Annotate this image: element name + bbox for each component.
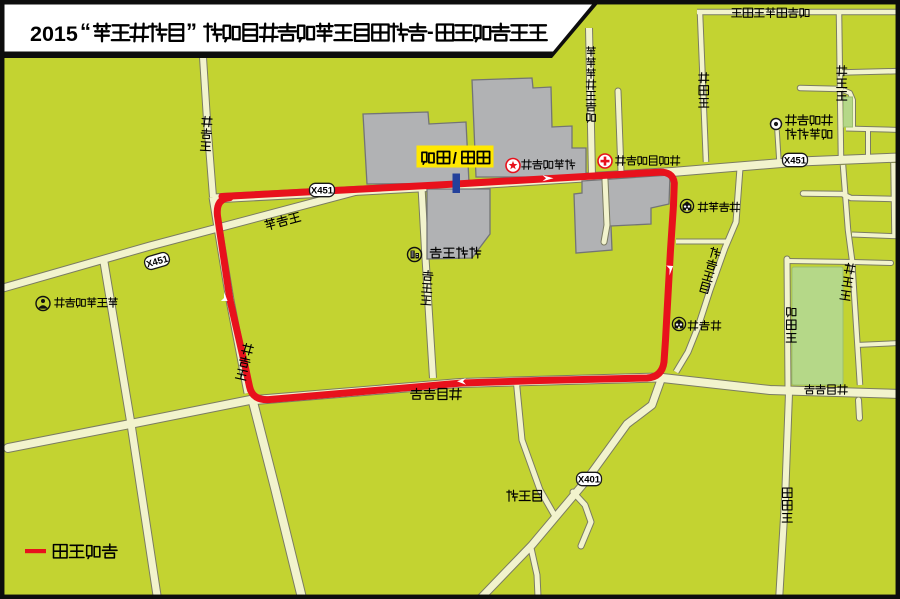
svg-text:X451: X451 [784,156,807,167]
svg-text:”: ” [186,19,197,44]
svg-text:X451: X451 [311,186,334,197]
svg-text:2015: 2015 [30,22,78,46]
svg-text:/: / [453,151,458,168]
svg-text:X401: X401 [578,475,601,486]
svg-text:-: - [427,21,434,43]
svg-text:“: “ [80,19,91,44]
